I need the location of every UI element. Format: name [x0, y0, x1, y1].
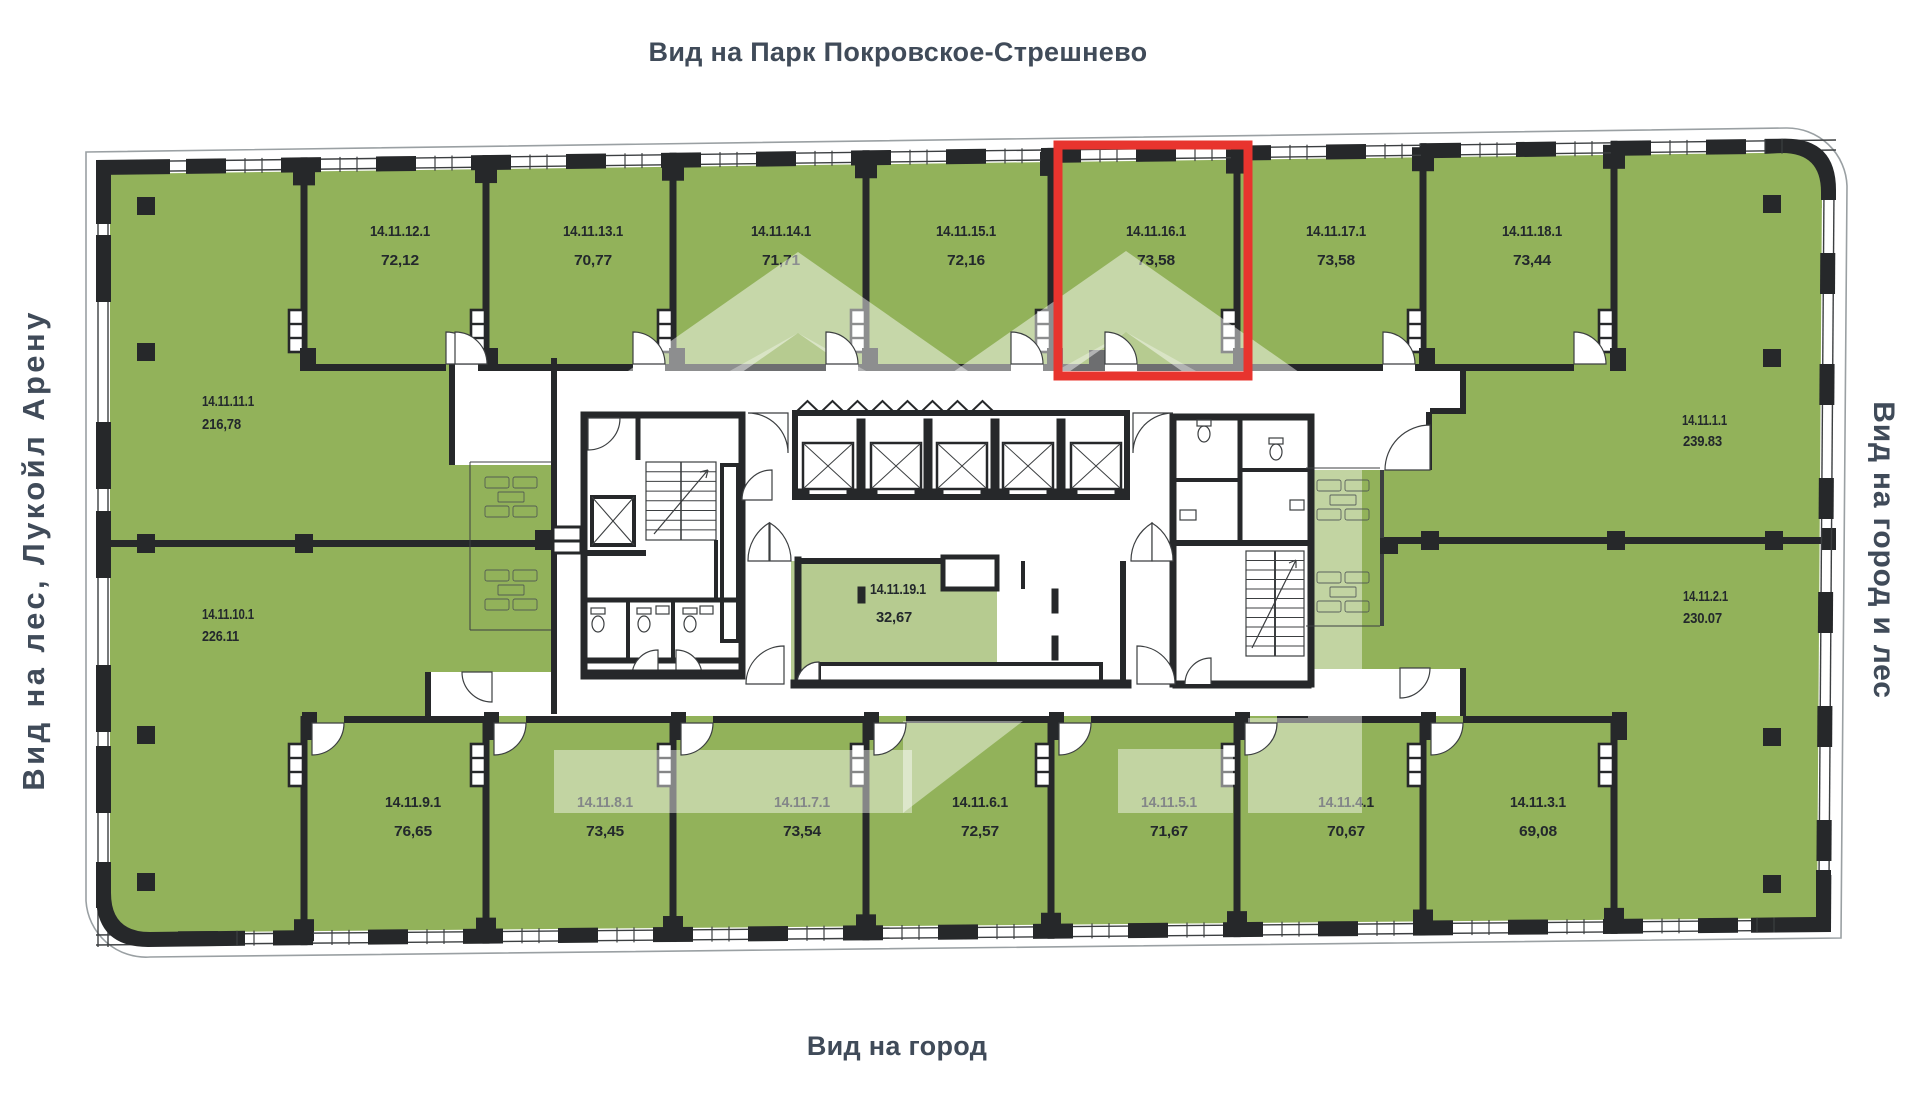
svg-text:Вид на город: Вид на город	[807, 1031, 987, 1061]
svg-text:72,16: 72,16	[947, 252, 985, 269]
svg-text:226.11: 226.11	[202, 628, 239, 645]
svg-text:70,77: 70,77	[574, 252, 612, 269]
svg-text:73,44: 73,44	[1513, 252, 1552, 269]
svg-text:230.07: 230.07	[1683, 610, 1722, 627]
svg-text:Вид на лес, Лукойл Арену: Вид на лес, Лукойл Арену	[16, 309, 51, 790]
svg-text:72,57: 72,57	[961, 823, 999, 840]
svg-text:14.11.13.1: 14.11.13.1	[563, 223, 623, 240]
svg-text:14.11.9.1: 14.11.9.1	[385, 794, 441, 811]
svg-text:14.11.11.1: 14.11.11.1	[202, 393, 254, 410]
svg-text:14.11.14.1: 14.11.14.1	[751, 223, 811, 240]
svg-text:216,78: 216,78	[202, 416, 241, 433]
svg-text:73,58: 73,58	[1317, 252, 1355, 269]
svg-text:14.11.12.1: 14.11.12.1	[370, 223, 430, 240]
svg-text:72,12: 72,12	[381, 252, 419, 269]
svg-text:14.11.18.1: 14.11.18.1	[1502, 223, 1562, 240]
svg-text:239.83: 239.83	[1683, 433, 1722, 450]
svg-text:14.11.3.1: 14.11.3.1	[1510, 794, 1566, 811]
svg-text:Вид на Парк Покровское-Стрешне: Вид на Парк Покровское-Стрешнево	[649, 37, 1148, 67]
svg-text:32,67: 32,67	[876, 609, 912, 626]
svg-text:14.11.16.1: 14.11.16.1	[1126, 223, 1186, 240]
svg-text:73,45: 73,45	[586, 823, 624, 840]
svg-text:71,67: 71,67	[1150, 823, 1188, 840]
svg-text:73,54: 73,54	[783, 823, 822, 840]
svg-text:14.11.1.1: 14.11.1.1	[1682, 412, 1727, 429]
svg-text:76,65: 76,65	[394, 823, 432, 840]
svg-text:14.11.2.1: 14.11.2.1	[1683, 588, 1728, 605]
svg-text:Вид на город и лес: Вид на город и лес	[1867, 401, 1900, 699]
svg-text:14.11.10.1: 14.11.10.1	[202, 606, 254, 623]
svg-text:69,08: 69,08	[1519, 823, 1557, 840]
svg-text:14.11.15.1: 14.11.15.1	[936, 223, 996, 240]
svg-text:14.11.17.1: 14.11.17.1	[1306, 223, 1366, 240]
svg-text:14.11.19.1: 14.11.19.1	[870, 581, 926, 598]
svg-text:70,67: 70,67	[1327, 823, 1365, 840]
svg-text:14.11.6.1: 14.11.6.1	[952, 794, 1008, 811]
